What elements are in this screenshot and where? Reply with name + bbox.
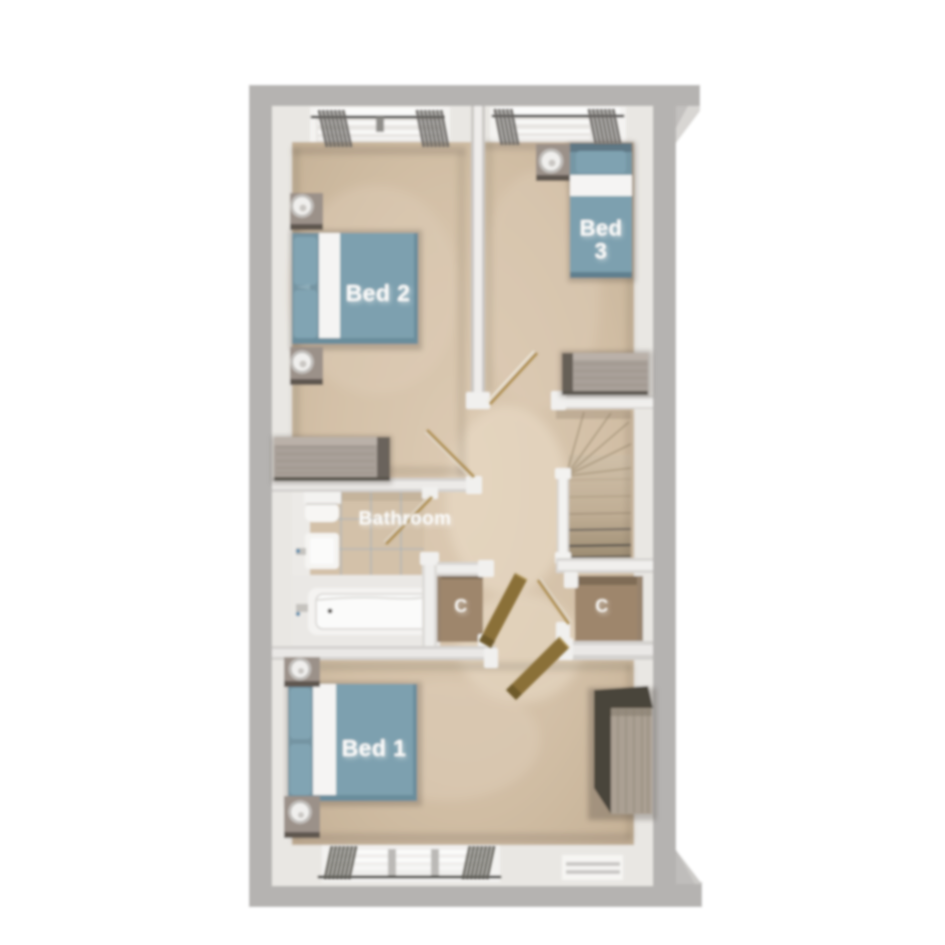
svg-text:Bathroom: Bathroom bbox=[359, 509, 452, 530]
svg-text:Bed: Bed bbox=[580, 216, 623, 241]
svg-text:Bed 1: Bed 1 bbox=[342, 735, 407, 761]
svg-text:C: C bbox=[595, 596, 608, 616]
svg-text:3: 3 bbox=[595, 239, 608, 264]
svg-text:C: C bbox=[454, 596, 467, 616]
svg-text:Bed 2: Bed 2 bbox=[346, 280, 411, 306]
